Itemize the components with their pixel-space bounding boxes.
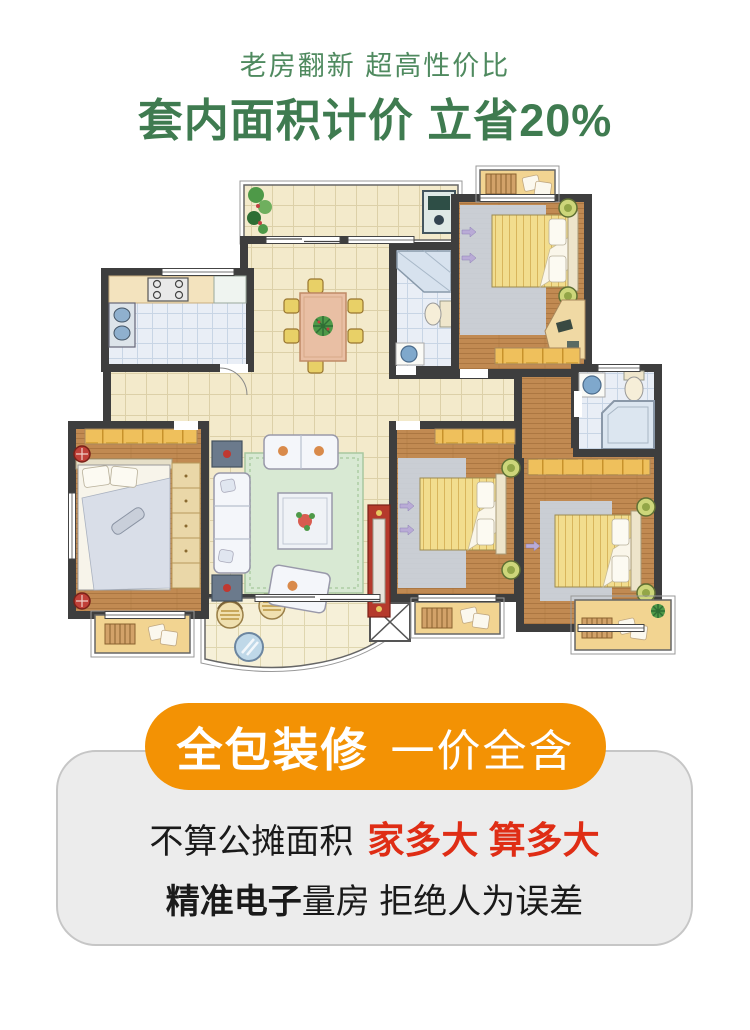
sink-icon (579, 373, 605, 397)
dining-chair (308, 279, 323, 293)
corridor (518, 373, 578, 455)
entry-porch (240, 181, 462, 244)
bedroom-bottom-middle (393, 425, 520, 598)
door-gap (396, 366, 416, 375)
side-table (212, 575, 242, 601)
promo-page: 老房翻新 超高性价比 套内面积计价 立省20% (0, 0, 750, 1030)
banner-label-regular: 一价全含 (391, 715, 575, 779)
promo-banner: 全包装修 一价全含 (145, 703, 606, 790)
dining-chair (284, 329, 299, 343)
window (162, 269, 234, 276)
entry-door (266, 237, 340, 244)
window (578, 625, 644, 632)
plant-icon (651, 604, 665, 618)
card-line1-highlight: 家多大 算多大 (367, 820, 599, 861)
toilet-icon (624, 371, 644, 401)
side-table (212, 441, 242, 467)
nightstand (74, 446, 90, 462)
stove-icon (148, 278, 188, 301)
card-line-1: 不算公摊面积家多大 算多大 (58, 810, 691, 864)
nightstand (502, 459, 520, 477)
card-line1-prefix: 不算公摊面积 (149, 823, 353, 861)
patio-chair-icon (217, 601, 243, 628)
nightstand (502, 561, 520, 579)
dining-chair (348, 299, 363, 313)
wardrobe (85, 429, 197, 444)
bedroom-top-right (455, 198, 588, 373)
sink-icon (396, 343, 424, 365)
bathroom-main (393, 246, 458, 370)
door-gap (396, 421, 420, 430)
window (69, 493, 76, 559)
sofa (214, 473, 250, 573)
nightstand (637, 498, 655, 516)
bathtub-icon (602, 401, 654, 449)
wardrobe (495, 348, 580, 364)
living-room (212, 435, 390, 617)
wardrobe (528, 459, 650, 475)
dining-chair (284, 299, 299, 313)
bed (76, 459, 172, 590)
window (418, 595, 496, 602)
card-line2-bold: 精准电子 (166, 883, 302, 921)
kitchen-sink-icon (109, 303, 135, 347)
radiator-icon (422, 608, 452, 628)
floor-plan-image (62, 163, 690, 695)
patio-table-icon (235, 633, 263, 661)
window (348, 237, 414, 244)
page-title: 套内面积计价 立省20% (0, 84, 750, 149)
dresser (172, 463, 200, 588)
window (480, 195, 555, 202)
bed (555, 511, 641, 591)
nightstand (74, 593, 90, 609)
dining-chair (348, 329, 363, 343)
wardrobe (435, 429, 515, 444)
door-gap (460, 369, 488, 378)
bathroom-right (575, 368, 658, 453)
balcony-bottom-middle (411, 598, 504, 638)
loveseat (264, 435, 338, 469)
bed (492, 211, 578, 291)
window (598, 365, 640, 372)
door-opening (521, 448, 573, 458)
water-heater-icon (423, 191, 455, 233)
centerpiece-plant-icon (313, 316, 333, 336)
nightstand (559, 199, 577, 217)
bed (420, 474, 506, 554)
window (105, 612, 185, 619)
radiator-icon (105, 624, 135, 644)
sliding-door (255, 595, 380, 602)
bedroom-left (72, 425, 205, 615)
door-gap (174, 421, 198, 430)
card-line2-rest: 量房 拒绝人为误差 (302, 883, 583, 921)
banner-label-bold: 全包装修 (177, 714, 369, 780)
card-line-2: 精准电子量房 拒绝人为误差 (58, 874, 691, 923)
radiator-icon (486, 174, 516, 194)
kitchen (105, 272, 250, 368)
door-gap (574, 391, 582, 417)
page-subtitle: 老房翻新 超高性价比 (0, 44, 750, 83)
coffee-table (278, 493, 332, 549)
